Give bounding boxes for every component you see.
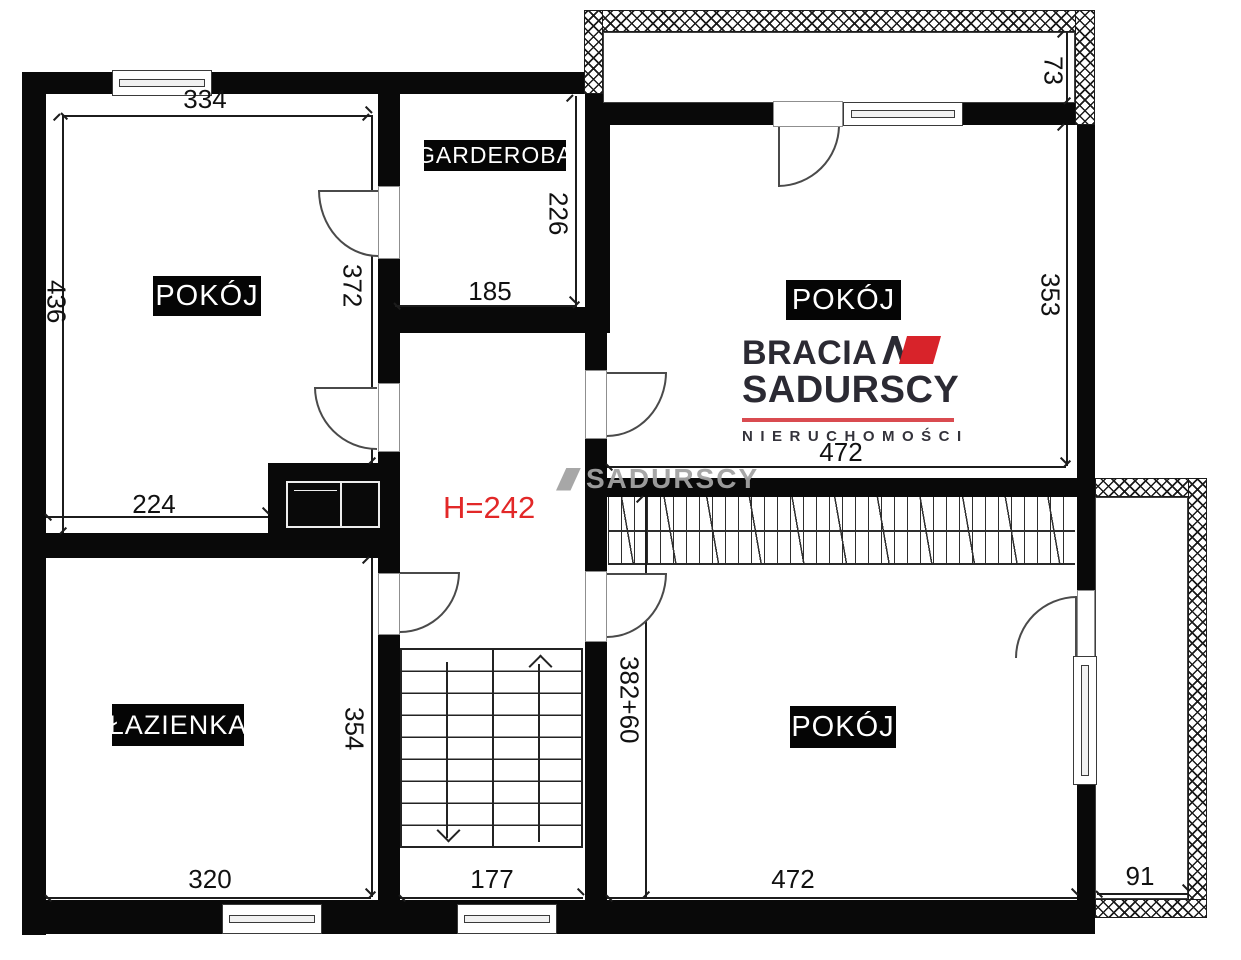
wall bbox=[1077, 480, 1095, 592]
dimension-line bbox=[62, 115, 371, 117]
room-label-pokoj-bottom-right: POKÓJ bbox=[790, 706, 896, 748]
wall bbox=[22, 900, 1095, 934]
wall bbox=[378, 307, 610, 333]
door-arc bbox=[318, 190, 378, 257]
window bbox=[222, 904, 322, 934]
logo-text-bracia: BRACIA bbox=[742, 336, 877, 370]
dim-tl-right: 372 bbox=[338, 250, 366, 322]
room-label-pokoj-top-left: POKÓJ bbox=[153, 276, 261, 316]
watermark: SADURSCY bbox=[556, 463, 759, 495]
dim-stairs-width: 177 bbox=[448, 864, 536, 894]
balcony-floor bbox=[1095, 497, 1188, 899]
dimension-line bbox=[607, 897, 1077, 899]
balcony-hatch bbox=[584, 10, 1093, 32]
door-arc bbox=[607, 573, 667, 638]
dim-bath-right: 354 bbox=[340, 698, 368, 760]
door-opening bbox=[378, 186, 400, 259]
window bbox=[457, 904, 557, 934]
dim-br-bottom: 472 bbox=[748, 864, 838, 894]
dimension-line bbox=[400, 897, 583, 899]
dim-tl-top: 334 bbox=[150, 84, 260, 114]
door-opening bbox=[773, 101, 843, 127]
door-opening bbox=[378, 573, 400, 635]
ceiling-height-note: H=242 bbox=[443, 490, 535, 526]
dimension-line bbox=[1066, 125, 1068, 466]
wall bbox=[585, 640, 607, 900]
dim-bath-bottom: 320 bbox=[166, 864, 254, 894]
builtin-wardrobe-symbol bbox=[608, 497, 1075, 565]
wall bbox=[378, 94, 400, 188]
room-label-lazienka: ŁAZIENKA bbox=[112, 704, 244, 746]
dim-tl-bottom: 224 bbox=[108, 490, 200, 518]
wall bbox=[22, 72, 610, 94]
wall bbox=[22, 72, 46, 935]
door-opening bbox=[585, 370, 607, 439]
dim-wardrobe-bottom: 185 bbox=[448, 278, 532, 304]
wall bbox=[378, 633, 400, 900]
window-pane bbox=[1081, 665, 1089, 777]
door-arc bbox=[1015, 596, 1077, 658]
arrow-up-icon bbox=[528, 654, 552, 678]
door-arc bbox=[607, 372, 667, 437]
cabinet-line bbox=[294, 490, 337, 491]
cabinet-divider bbox=[340, 483, 342, 526]
window bbox=[1073, 656, 1097, 785]
dim-br-left: 382+60 bbox=[614, 654, 644, 746]
logo-rule bbox=[742, 418, 954, 422]
watermark-text: SADURSCY bbox=[586, 463, 759, 495]
dimension-line bbox=[1097, 893, 1188, 895]
dimension-line bbox=[645, 497, 647, 897]
door-opening bbox=[378, 383, 400, 452]
door-opening bbox=[1077, 590, 1095, 660]
door-arc bbox=[400, 572, 460, 633]
logo-text-sadurscy: SADURSCY bbox=[742, 370, 966, 411]
wall bbox=[585, 94, 610, 333]
balcony-hatch bbox=[1075, 10, 1095, 125]
window bbox=[843, 102, 963, 126]
dimension-line bbox=[575, 96, 577, 307]
dim-tr-right: 353 bbox=[1036, 262, 1064, 328]
watermark-parallelogram-icon bbox=[556, 468, 581, 491]
stairs-divider bbox=[492, 650, 494, 846]
dim-balcony-depth: 73 bbox=[1040, 44, 1066, 96]
window-pane bbox=[851, 110, 955, 118]
floor-plan: 334 436 372 224 226 185 73 353 472 354 3… bbox=[0, 0, 1241, 960]
wall bbox=[1077, 783, 1095, 900]
logo-parallelogram-icon bbox=[899, 336, 941, 364]
arrow-down-icon bbox=[436, 818, 460, 842]
balcony-floor bbox=[603, 32, 1075, 103]
stairs-down-line bbox=[446, 662, 448, 838]
door-arc bbox=[778, 125, 840, 187]
logo-tagline: NIERUCHOMOŚCI bbox=[742, 428, 966, 445]
staircase bbox=[400, 648, 583, 848]
agency-logo: BRACIA SADURSCY NIERUCHOMOŚCI bbox=[742, 336, 966, 445]
window-pane bbox=[464, 915, 550, 923]
balcony-hatch bbox=[1095, 899, 1207, 918]
dimension-line bbox=[46, 897, 371, 899]
wall bbox=[1077, 125, 1095, 480]
dim-wardrobe-right: 226 bbox=[544, 182, 572, 246]
wall bbox=[585, 333, 607, 372]
stairs-up-line bbox=[538, 664, 540, 842]
room-label-pokoj-top-right: POKÓJ bbox=[786, 280, 901, 320]
door-arc bbox=[314, 387, 377, 450]
dim-tl-left: 436 bbox=[42, 266, 70, 338]
cabinet-symbol bbox=[286, 481, 380, 528]
dim-balcony-right-width: 91 bbox=[1110, 862, 1170, 890]
logo-mark-icon bbox=[882, 336, 937, 364]
room-label-garderoba: GARDEROBA bbox=[424, 140, 566, 171]
balcony-hatch bbox=[1188, 478, 1207, 918]
door-opening bbox=[585, 571, 607, 642]
window-pane bbox=[229, 915, 315, 923]
dimension-line bbox=[371, 558, 373, 897]
balcony-hatch bbox=[584, 10, 603, 94]
